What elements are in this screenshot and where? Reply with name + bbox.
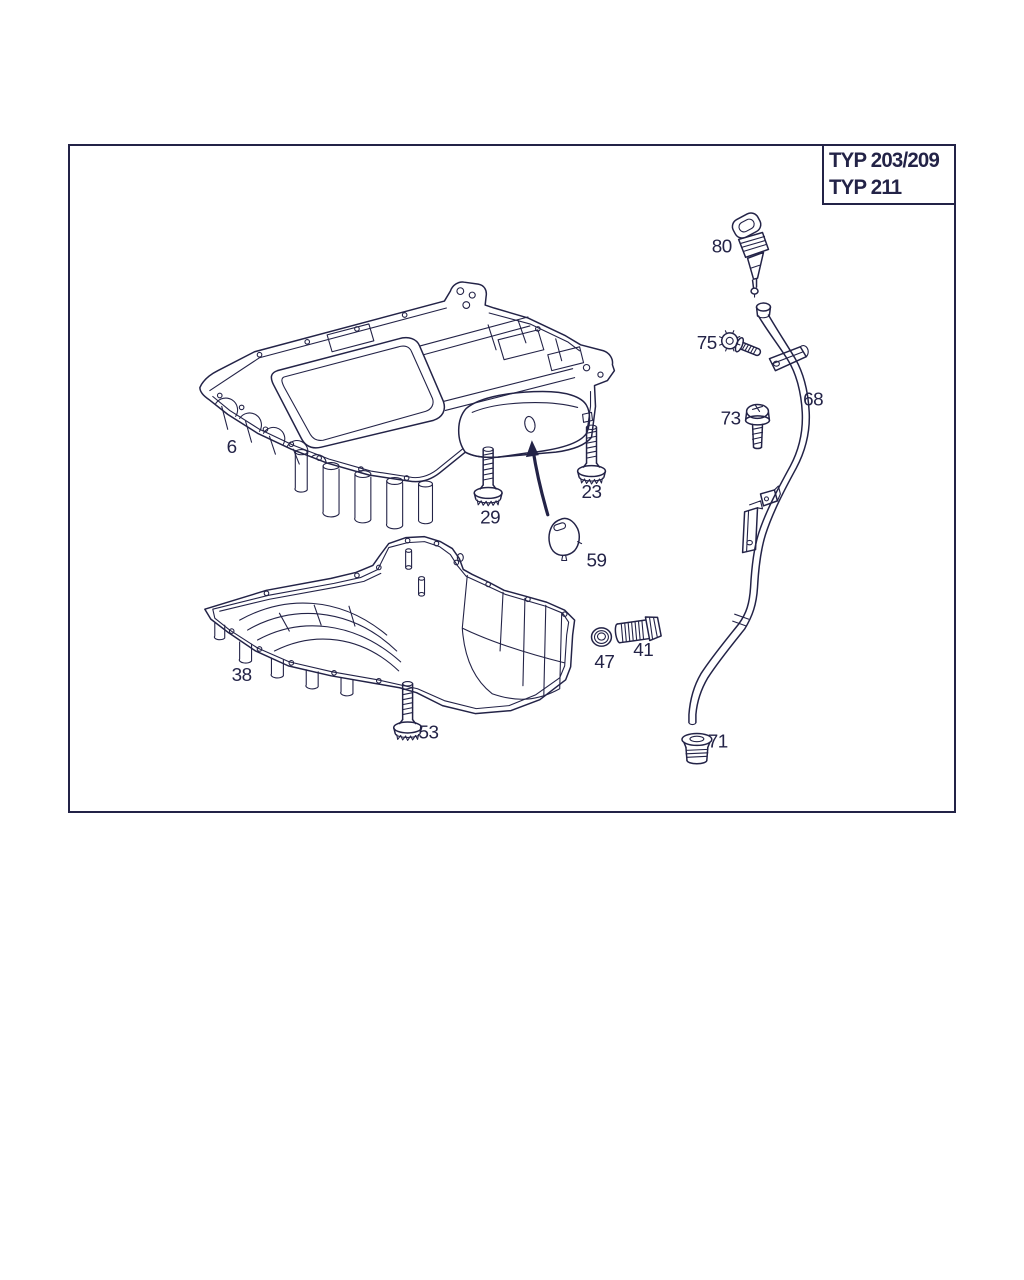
type-line-1: TYP 203/209 xyxy=(829,147,950,174)
part-label-53: 53 xyxy=(418,722,438,743)
type-designation-box: TYP 203/209 TYP 211 xyxy=(822,144,956,205)
part-label-73: 73 xyxy=(721,408,741,429)
part-label-71: 71 xyxy=(708,731,728,752)
part-callouts: 6 29 23 59 38 47 41 53 71 73 75 68 80 xyxy=(227,236,824,752)
lower-oil-pan-drawing xyxy=(205,537,575,714)
upper-oil-pan-drawing xyxy=(200,282,615,529)
part-label-68: 68 xyxy=(803,389,823,410)
part-label-59: 59 xyxy=(586,550,606,571)
seal-59-drawing xyxy=(549,518,582,560)
guide-tube-68-drawing xyxy=(689,303,809,724)
part-label-38: 38 xyxy=(232,665,252,686)
screw-73-drawing xyxy=(746,404,770,448)
type-line-2: TYP 211 xyxy=(829,174,950,201)
washer-47-drawing xyxy=(592,628,612,646)
dipstick-80-drawing xyxy=(730,210,769,297)
diagram-canvas: 6 29 23 59 38 47 41 53 71 73 75 68 80 xyxy=(70,146,954,811)
screw-75-drawing xyxy=(715,327,764,364)
part-label-75: 75 xyxy=(697,333,717,354)
part-label-23: 23 xyxy=(582,482,602,503)
parts-diagram-page: 6 29 23 59 38 47 41 53 71 73 75 68 80 TY… xyxy=(0,0,1024,1280)
part-label-6: 6 xyxy=(227,437,237,458)
part-label-41: 41 xyxy=(633,640,653,661)
part-label-80: 80 xyxy=(712,236,732,257)
diagram-frame: 6 29 23 59 38 47 41 53 71 73 75 68 80 TY… xyxy=(68,144,956,813)
part-label-29: 29 xyxy=(480,508,500,529)
part-label-47: 47 xyxy=(594,652,614,673)
